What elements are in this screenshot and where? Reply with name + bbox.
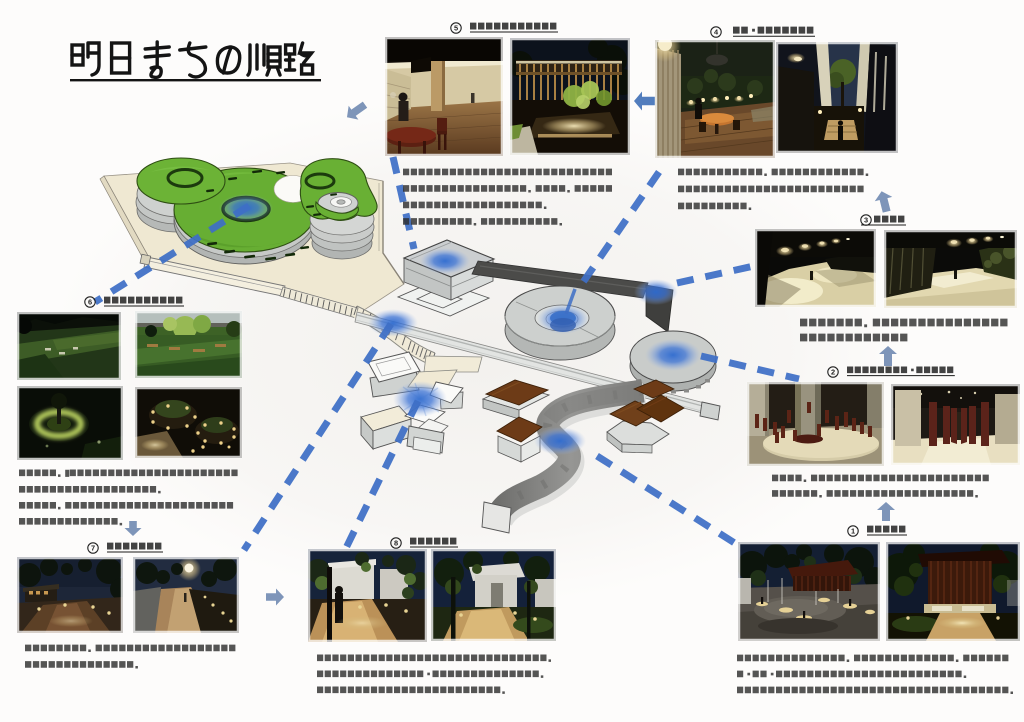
- svg-text:1: 1: [851, 527, 855, 536]
- svg-text:8: 8: [394, 539, 398, 548]
- svg-text:7: 7: [91, 544, 95, 553]
- svg-text:6: 6: [88, 298, 92, 307]
- svg-text:5: 5: [454, 24, 458, 33]
- svg-text:3: 3: [864, 216, 868, 225]
- svg-text:2: 2: [831, 368, 835, 377]
